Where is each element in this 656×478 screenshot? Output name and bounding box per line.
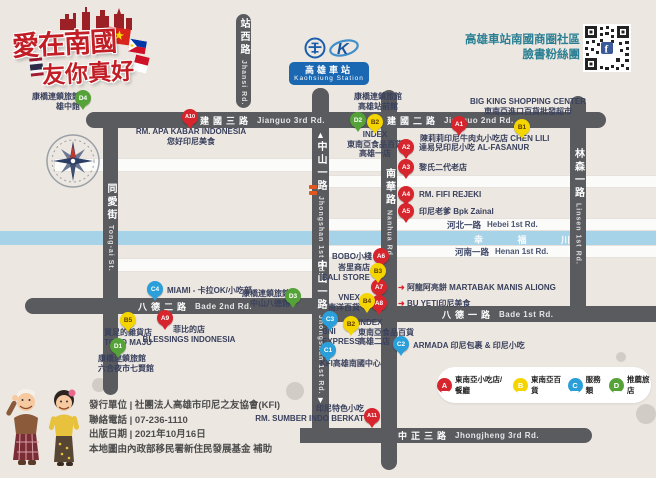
map-pin-c3: C3 xyxy=(322,311,338,327)
map-label-a4: RM. FIFI REJEKI xyxy=(419,190,509,200)
legend-pin-c: C xyxy=(568,378,583,393)
map-pin-b3: B3 xyxy=(370,263,386,279)
map-pin-b2: B2 xyxy=(343,316,359,332)
map-pin-a3: A3 xyxy=(398,159,414,175)
map-pin-c4: C4 xyxy=(147,281,163,297)
event-logo: 愛在南國 友你真好 xyxy=(8,2,183,100)
indonesia-flag-icon xyxy=(132,55,149,74)
mascots-illustration xyxy=(6,386,88,472)
svg-text:f: f xyxy=(605,44,609,56)
road-label-hebei: 河北一路 Hebei 1st Rd. xyxy=(447,219,538,230)
map-pin-b1: B1 xyxy=(514,119,530,135)
publish-date-line: 出版日期 | 2021年10月16日 xyxy=(89,428,280,443)
facebook-qr-code: f xyxy=(583,24,631,72)
map-label-a10: RM. APA KABAR INDONESIA您好印尼美食 xyxy=(130,127,252,146)
road-label-henan: 河南一路 Henan 1st Rd. xyxy=(455,246,548,257)
road-label-nanhua: 南華路 Nanhua Rd. xyxy=(381,168,397,259)
facebook-community-title: 高雄車站南國商圈社區 臉書粉絲團 xyxy=(420,33,580,63)
logo-title-line2: 友你真好 xyxy=(41,52,135,91)
map-pin-d4: D4 xyxy=(75,90,91,106)
legend-item-service: C 服務類 xyxy=(568,374,603,396)
map-pin-c1: C1 xyxy=(320,342,336,358)
map-pin-a5: A5 xyxy=(398,203,414,219)
legend-item-food: A 東南亞小吃店/餐廳 xyxy=(437,374,507,396)
road-label-jhansi: 站西路 Jhansi Rd. xyxy=(236,18,251,105)
bus-stop-mark xyxy=(309,191,317,195)
road-label-tongai: 同愛街 Tong-ai St. xyxy=(103,183,118,272)
map-pin-d1: D1 xyxy=(110,338,126,354)
bus-stop-mark xyxy=(309,185,317,189)
svg-text:K: K xyxy=(337,41,350,58)
road-label-jianguo-3rd: 建國三路 Jianguo 3rd Rd. xyxy=(200,112,325,128)
map-label-a6: BOBO小棧 xyxy=(314,252,372,262)
map-label-a2: 達易兒印尼小吃 AL-FASANUR xyxy=(419,143,549,153)
map-pin-a1: A1 xyxy=(451,116,467,132)
phone-line: 聯絡電話 | 07-236-1110 xyxy=(89,414,280,429)
map-pin-c2: C2 xyxy=(393,336,409,352)
map-label-a8: ➜ BU YETI印尼美食 xyxy=(398,299,508,309)
map-label-d3: 康橋連鎖旅館中山八德館 xyxy=(228,289,290,308)
legend-pin-a: A xyxy=(437,378,452,393)
publication-info: 發行單位 | 社團法人高雄市印尼之友協會(KFI) 聯絡電話 | 07-236-… xyxy=(89,399,280,457)
legend-item-goods: B 東南亞百貨 xyxy=(513,374,562,396)
map-pin-a9: A9 xyxy=(157,310,173,326)
legend-pin-b: B xyxy=(513,378,528,393)
map-label-c1: KFI高雄南國中心 xyxy=(320,359,415,369)
map-pin-b5: B5 xyxy=(120,312,136,328)
taiwan-railways-icon xyxy=(304,37,326,59)
publisher-line: 發行單位 | 社團法人高雄市印尼之友協會(KFI) xyxy=(89,399,280,414)
kaohsiung-metro-icon: K xyxy=(328,37,360,59)
map-pin-d3: D3 xyxy=(285,288,301,304)
map-label-d1: 康橋連鎖旅館六合夜市七賢館 xyxy=(98,354,173,373)
road-label-jhongjheng: 中正三路 Jhongjheng 3rd Rd. xyxy=(398,427,539,443)
road-minor-east xyxy=(329,176,656,187)
map-pin-a10: A10 xyxy=(182,109,198,125)
map-label-c2: ARMADA 印尼包裹 & 印尼小吃 xyxy=(413,341,553,351)
map-pin-b2: B2 xyxy=(367,114,383,130)
map-label-b4: VNEX南洋百貨 xyxy=(314,293,360,312)
map-label-a7: ➜ 阿龍阿亮餅 MARTABAK MANIS ALIONG xyxy=(398,283,573,293)
map-label-a5: 印尼老爹 Bpk Zainal xyxy=(419,207,529,217)
map-label-b3: 峇里商店BALI STORE xyxy=(314,263,370,282)
legend-item-hotel: D 推薦旅店 xyxy=(609,374,651,396)
map-pin-a4: A4 xyxy=(398,186,414,202)
map-poster: 河北一路 Hebei 1st Rd. 幸 福 川 河南一路 Henan 1st … xyxy=(0,0,656,478)
map-pin-d2: D2 xyxy=(350,112,366,128)
map-label-a3: 黎氏二代老店 xyxy=(419,163,509,173)
map-label-d4: 康橋連鎖旅館雄中館 xyxy=(20,92,80,111)
road-label-linsen: 林森一路 Linsen 1st Rd. xyxy=(570,148,586,265)
decor-dot xyxy=(286,382,304,400)
map-legend: A 東南亞小吃店/餐廳 B 東南亞百貨 C 服務類 D 推薦旅店 xyxy=(437,367,651,403)
legend-pin-d: D xyxy=(609,378,624,393)
map-pin-b4: B4 xyxy=(359,293,375,309)
decor-dot xyxy=(616,352,626,362)
map-pin-a11: A11 xyxy=(364,408,380,424)
map-label-b1: BIG KING SHOPPING CENTER東南亞進口百貨批發超市 xyxy=(466,97,590,116)
map-label-d2: 康橋連鎖旅館高雄站前館 xyxy=(344,92,412,111)
decor-dot xyxy=(636,404,656,424)
road-henan-west xyxy=(116,259,312,271)
map-pin-a2: A2 xyxy=(398,139,414,155)
compass-rose xyxy=(44,132,102,190)
sponsor-line: 本地圖由內政部移民署新住民發展基金 補助 xyxy=(89,443,280,458)
map-pin-a6: A6 xyxy=(373,248,389,264)
kaohsiung-station-badge: 高雄車站 Kaohsiung Station xyxy=(289,62,369,85)
